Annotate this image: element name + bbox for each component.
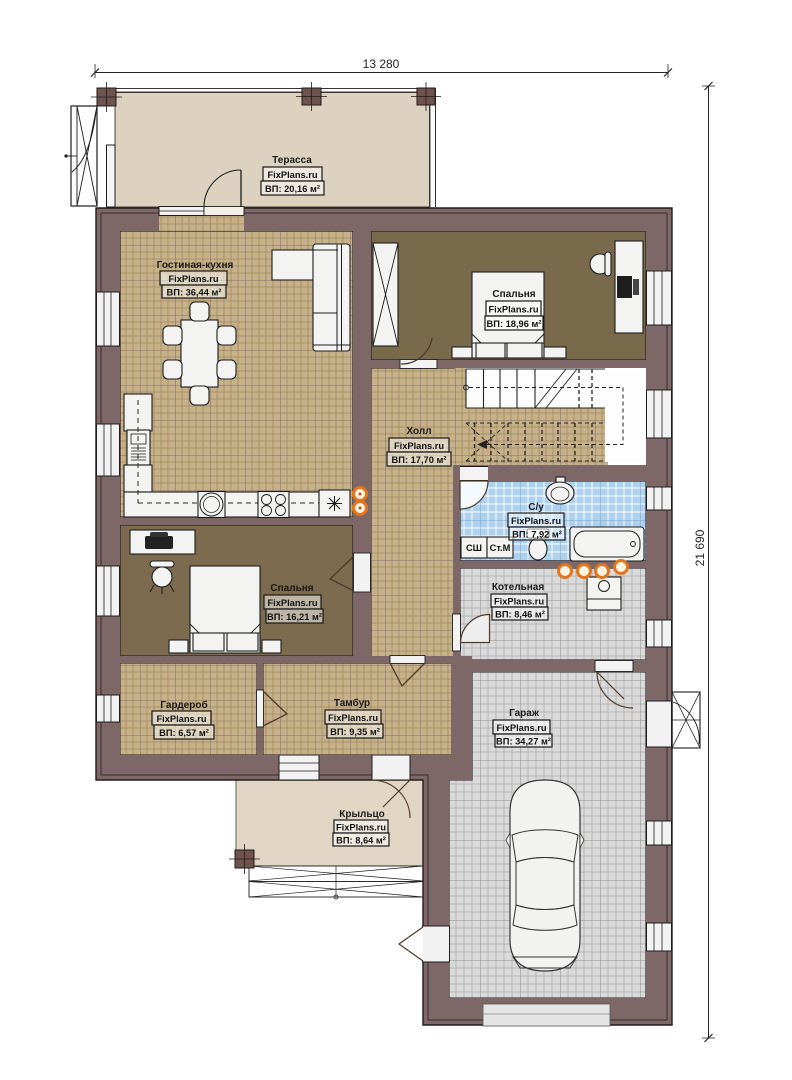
- svg-text:ВП: 17,70 м²: ВП: 17,70 м²: [392, 455, 447, 465]
- svg-text:ВП: 16,21 м²: ВП: 16,21 м²: [267, 612, 322, 622]
- svg-text:ВП: 7,92 м²: ВП: 7,92 м²: [512, 530, 562, 540]
- svg-text:ВП: 34,27 м²: ВП: 34,27 м²: [496, 737, 551, 747]
- svg-text:Спальня: Спальня: [270, 583, 313, 594]
- svg-text:Ст.М: Ст.М: [490, 543, 511, 553]
- svg-text:FixPlans.ru: FixPlans.ru: [267, 170, 317, 180]
- svg-text:FixPlans.ru: FixPlans.ru: [168, 274, 218, 284]
- svg-text:Терасса: Терасса: [272, 155, 312, 166]
- svg-text:FixPlans.ru: FixPlans.ru: [394, 441, 444, 451]
- svg-text:Крыльцо: Крыльцо: [339, 809, 385, 820]
- svg-text:С/у: С/у: [528, 502, 544, 513]
- svg-text:Холл: Холл: [406, 426, 431, 437]
- svg-text:FixPlans.ru: FixPlans.ru: [496, 723, 546, 733]
- svg-text:ВП: 8,64 м²: ВП: 8,64 м²: [336, 836, 386, 846]
- svg-text:FixPlans.ru: FixPlans.ru: [156, 714, 206, 724]
- svg-text:ВП: 9,35 м²: ВП: 9,35 м²: [330, 727, 380, 737]
- svg-text:Котельная: Котельная: [492, 582, 545, 593]
- svg-text:FixPlans.ru: FixPlans.ru: [511, 516, 561, 526]
- svg-text:ВП: 36,44 м²: ВП: 36,44 м²: [167, 288, 222, 298]
- svg-text:Спальня: Спальня: [492, 289, 535, 300]
- svg-text:ВП: 6,57 м²: ВП: 6,57 м²: [159, 728, 209, 738]
- svg-text:13 280: 13 280: [363, 57, 400, 71]
- svg-text:FixPlans.ru: FixPlans.ru: [488, 305, 538, 315]
- svg-text:ВП: 8,46 м²: ВП: 8,46 м²: [495, 610, 545, 620]
- svg-text:ВП: 20,16 м²: ВП: 20,16 м²: [265, 184, 320, 194]
- svg-text:СШ: СШ: [466, 543, 482, 553]
- svg-text:Гостиная-кухня: Гостиная-кухня: [157, 260, 234, 271]
- svg-text:FixPlans.ru: FixPlans.ru: [336, 823, 386, 833]
- svg-text:Гараж: Гараж: [509, 708, 540, 719]
- svg-text:Гардероб: Гардероб: [160, 699, 207, 711]
- svg-text:FixPlans.ru: FixPlans.ru: [494, 597, 544, 607]
- svg-text:ВП: 18,96 м²: ВП: 18,96 м²: [487, 319, 542, 329]
- svg-text:21 690: 21 690: [693, 529, 707, 566]
- svg-text:FixPlans.ru: FixPlans.ru: [328, 713, 378, 723]
- svg-text:Тамбур: Тамбур: [334, 697, 370, 709]
- svg-text:FixPlans.ru: FixPlans.ru: [267, 598, 317, 608]
